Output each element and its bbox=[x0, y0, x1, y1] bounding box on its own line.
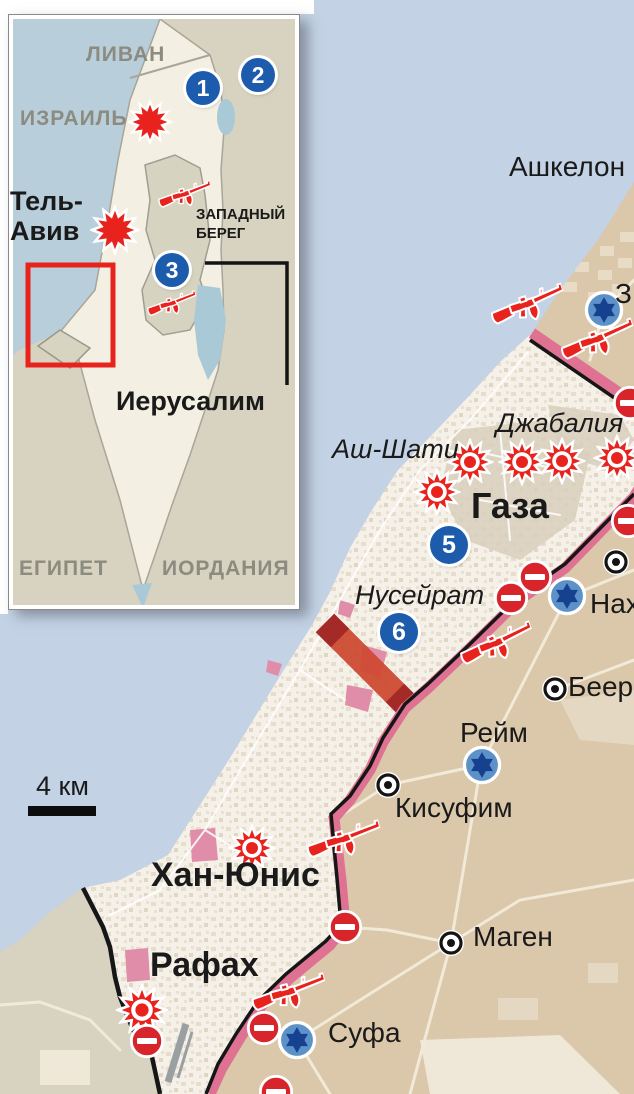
label-jabalia: Джабалия bbox=[496, 409, 623, 437]
label-tel-aviv-line1: Тель- bbox=[10, 186, 83, 216]
label-west-bank: ЗАПАДНЫЙ БЕРЕГ bbox=[196, 205, 285, 243]
label-reim: Рейм bbox=[460, 718, 528, 747]
marker-6: 6 bbox=[380, 613, 418, 651]
label-ashkelon: Ашкелон bbox=[509, 152, 625, 181]
field-patch bbox=[498, 998, 538, 1020]
label-gaza: Газа bbox=[471, 487, 549, 525]
marker-5: 5 bbox=[430, 526, 468, 564]
label-sufa: Суфа bbox=[328, 1018, 401, 1047]
marker-3: 3 bbox=[155, 253, 189, 287]
label-israel: ИЗРАИЛЬ bbox=[20, 108, 128, 130]
sea-of-galilee bbox=[217, 99, 235, 135]
page-margin bbox=[0, 0, 314, 14]
marker-1: 1 bbox=[186, 71, 220, 105]
label-zikim-cut: З bbox=[615, 279, 632, 308]
label-ash-shati: Аш-Шати bbox=[332, 435, 459, 463]
corridor-end bbox=[325, 623, 340, 638]
marker-2: 2 bbox=[241, 58, 275, 92]
label-west-bank-line2: БЕРЕГ bbox=[196, 224, 285, 243]
inset-locator-map bbox=[8, 14, 300, 610]
label-lebanon: ЛИВАН bbox=[86, 44, 165, 66]
label-tel-aviv: Тель- Авив bbox=[10, 186, 83, 246]
label-nahal-oz-cut: Нах bbox=[590, 589, 634, 618]
label-jordan: ИОРДАНИЯ bbox=[162, 558, 290, 580]
label-rafah: Рафах bbox=[150, 948, 259, 984]
field-patch bbox=[40, 1050, 90, 1085]
label-jerusalem: Иерусалим bbox=[116, 386, 265, 416]
label-magen: Маген bbox=[473, 922, 553, 951]
field-patch bbox=[588, 963, 618, 983]
scale-label: 4 км bbox=[36, 772, 89, 800]
label-nuseirat: Нусейрат bbox=[355, 581, 484, 609]
label-khan-yunis: Хан-Юнис bbox=[151, 858, 320, 894]
page-margin bbox=[0, 0, 8, 614]
label-kisufim: Кисуфим bbox=[395, 793, 513, 822]
infographic-map: 1 2 3 5 6 ЛИВАН ИЗРАИЛЬ Тель- Авив ЗАПАД… bbox=[0, 0, 634, 1094]
scale-bar bbox=[28, 806, 96, 816]
label-egypt: ЕГИПЕТ bbox=[19, 558, 108, 580]
label-beeri-cut: Беер bbox=[568, 672, 633, 701]
label-tel-aviv-line2: Авив bbox=[10, 216, 83, 246]
label-west-bank-line1: ЗАПАДНЫЙ bbox=[196, 205, 285, 224]
